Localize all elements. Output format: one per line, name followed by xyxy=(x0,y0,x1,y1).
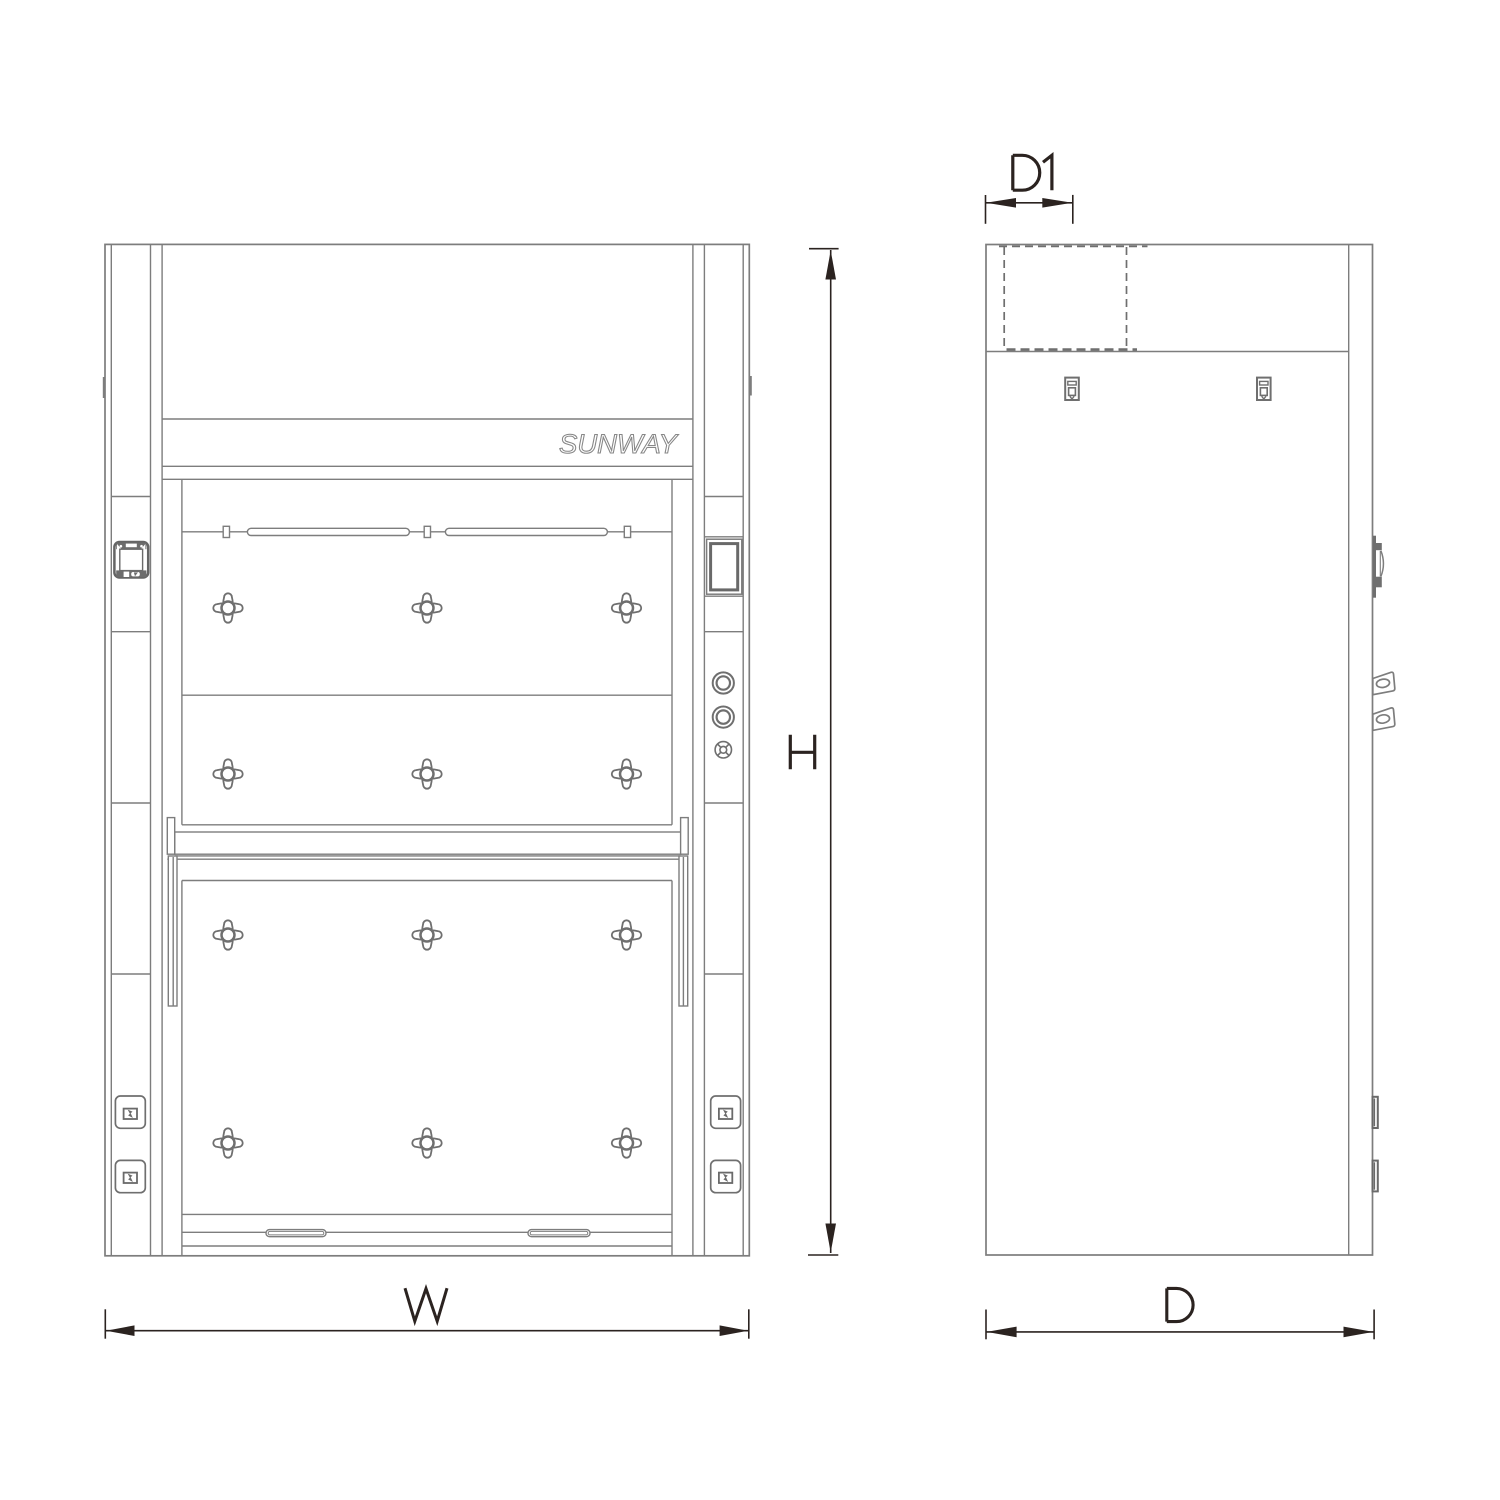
svg-text:SUNWAY: SUNWAY xyxy=(559,429,679,459)
